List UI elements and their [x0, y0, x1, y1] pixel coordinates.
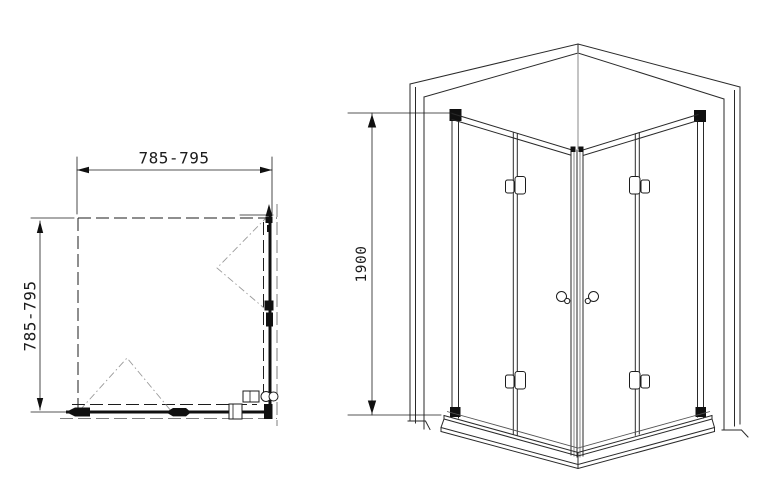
- plan-swing-right-door: [217, 216, 268, 308]
- left-top-rail-outer: [452, 114, 572, 151]
- left-top-rail-inner: [452, 120, 572, 156]
- left-wall-bottom: [408, 421, 430, 430]
- left-post-bottom-bracket: [450, 407, 461, 417]
- plan-glass-walls: [66, 214, 270, 412]
- shower-enclosure-drawing: 785-795 785-795: [0, 0, 777, 500]
- plan-top-pivot-stem: [267, 225, 272, 232]
- plan-width-label: 785-795: [139, 149, 210, 168]
- perspective-view: 1900: [348, 44, 748, 469]
- arrow-right: [260, 167, 272, 173]
- wall-top-outer-edge: [410, 44, 740, 87]
- right-top-rail-inner: [583, 121, 698, 156]
- plan-depth-dimension: 785-795: [21, 218, 75, 412]
- arrow-down: [37, 398, 43, 410]
- knob-right-stem: [585, 298, 590, 303]
- technical-drawing-page: 785-795 785-795: [0, 0, 777, 500]
- arrow-down: [368, 401, 376, 415]
- plan-bracket-knob-inner: [269, 392, 278, 401]
- hinge-left-top-a: [506, 180, 515, 193]
- arrow-up: [368, 114, 376, 128]
- plan-hardware: [66, 204, 278, 419]
- corner-post-top-cap-left: [571, 147, 576, 153]
- right-wall-bottom: [722, 430, 748, 437]
- wall-top-inner-edge: [424, 53, 724, 99]
- plan-width-dimension: 785-795: [77, 149, 272, 215]
- hinge-left-bottom-b: [515, 372, 526, 390]
- hinge-left-top-b: [515, 177, 526, 195]
- plan-top-pivot-body: [266, 217, 273, 223]
- height-label: 1900: [354, 246, 370, 283]
- knob-left-stem: [565, 298, 570, 303]
- plan-fold-hinge-lower: [266, 313, 273, 327]
- arrow-left: [77, 167, 89, 173]
- hinge-right-bottom-a: [630, 372, 641, 390]
- plan-top-pivot-arrow: [266, 204, 273, 217]
- plan-depth-label: 785-795: [21, 281, 40, 352]
- hinge-right-top-a: [630, 177, 641, 195]
- plan-door-swing-indicators: [80, 216, 268, 412]
- plan-wall-bracket: [243, 391, 259, 402]
- height-dimension: 1900: [348, 113, 452, 415]
- plan-view: 785-795 785-795: [21, 149, 279, 427]
- corner-post-top-cap-right: [579, 147, 584, 153]
- corner-post: [571, 147, 584, 458]
- right-post-top-bracket: [694, 110, 706, 122]
- hinge-left-bottom-a: [506, 375, 515, 388]
- arrow-up: [37, 221, 43, 233]
- plan-corner-connector: [264, 404, 273, 419]
- tray-right-end: [712, 416, 715, 432]
- tray-left-end: [441, 416, 444, 432]
- plan-swing-bottom-door: [80, 358, 172, 412]
- plan-fold-hinge-upper: [265, 301, 274, 311]
- hinge-right-top-b: [641, 180, 650, 193]
- hinge-right-bottom-b: [641, 375, 650, 388]
- right-top-rail-outer: [583, 115, 698, 151]
- plan-corner-clamp-outline: [229, 404, 242, 419]
